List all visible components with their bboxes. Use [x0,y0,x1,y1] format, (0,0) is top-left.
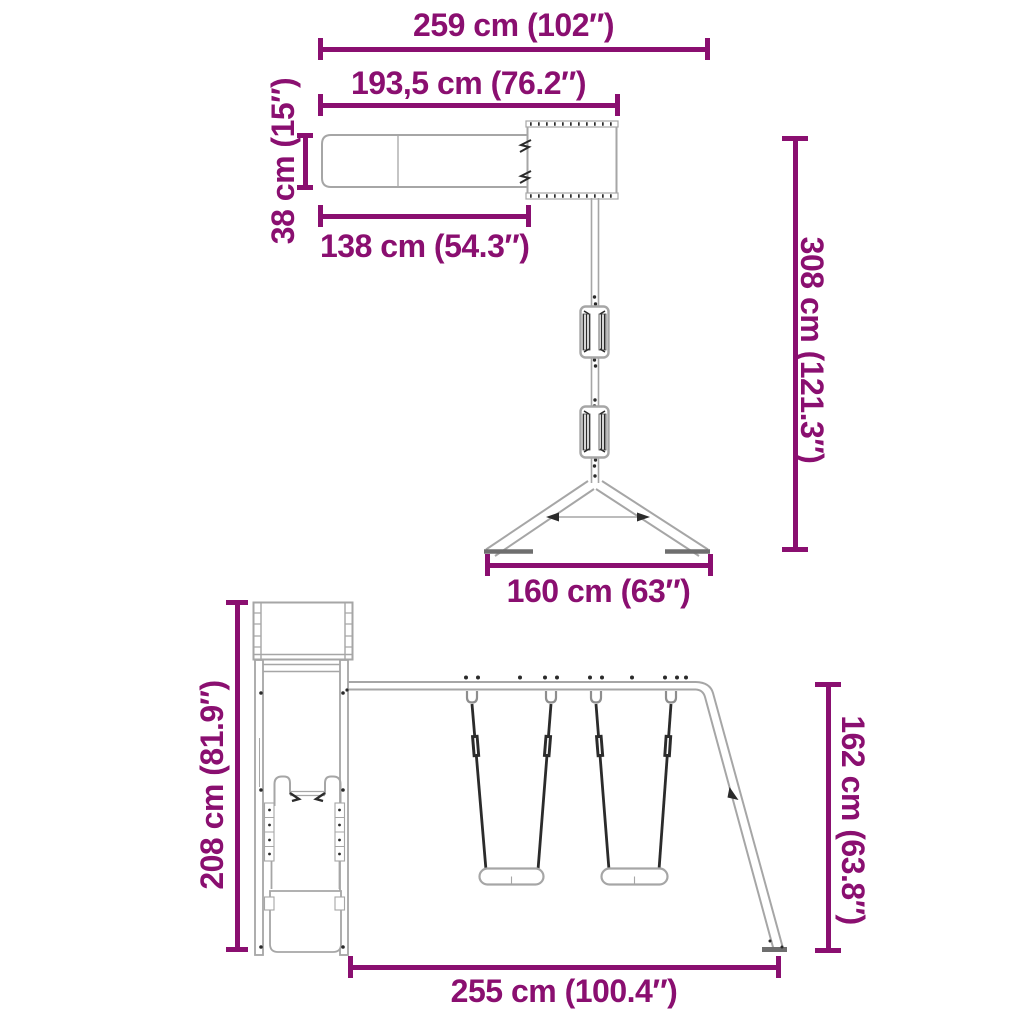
swing-1-top-view [581,307,609,358]
dim-base-width-label: 160 cm (63″) [487,574,710,608]
swing-beam-side-view [348,682,783,949]
swing-2-top-view [581,407,609,458]
side-view-drawing [254,603,788,956]
dim-total-height-label: 308 cm (121.3″) [795,200,829,500]
platform-plank-hatch-bottom [526,193,618,199]
slide-top-view [322,135,528,187]
dim-platform-slide-length-label: 193,5 cm (76.2″) [320,66,617,100]
platform-top-view [528,123,617,199]
platform-plank-hatch-top [526,121,618,127]
a-frame-legs-top-view [486,481,708,556]
rope-buckles [475,735,669,757]
tower-top-box [254,603,353,660]
tower-post-left [255,660,263,955]
leg-connector-arrow [728,787,739,800]
dim-total-width-label: 259 cm (102″) [320,8,707,42]
product-dimension-diagram: 259 cm (102″) 193,5 cm (76.2″) 38 cm (15… [0,0,1024,1024]
swing-ropes [472,704,671,870]
dim-swing-frame-height-label: 162 cm (63.8″) [836,670,870,970]
slide-bed [270,806,341,952]
swing-hangers [467,691,676,703]
dim-swing-section-length-label: 255 cm (100.4″) [350,974,778,1008]
dim-slide-width-label: 38 cm (15″) [266,51,300,271]
top-view-drawing [322,121,710,556]
beam-hanger-dots [345,676,783,949]
slide-handles [275,777,341,807]
rope-buckle-highlights [475,738,668,754]
dim-slide-length-label: 138 cm (54.3″) [320,229,528,263]
dim-tower-height-label: 208 cm (81.9″) [195,635,229,935]
